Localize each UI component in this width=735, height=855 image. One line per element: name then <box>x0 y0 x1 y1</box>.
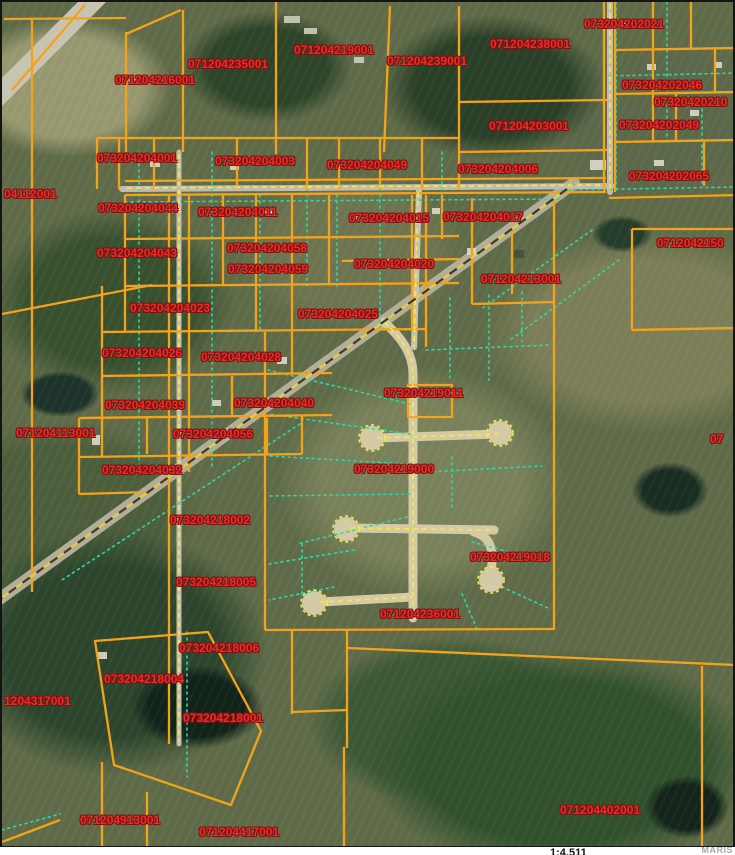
parcel-id-label: 073204204001 <box>97 152 177 164</box>
parcel-id-label: 073204204026 <box>102 347 182 359</box>
parcel-id-label: 071204216001 <box>115 74 195 86</box>
parcel-id-label: 071204213001 <box>481 273 561 285</box>
parcel-id-label: 07320420210 <box>654 96 727 108</box>
parcel-id-label: 073204218002 <box>170 514 250 526</box>
parcel-id-label: 073204218004 <box>104 673 184 685</box>
parcel-id-label: 073204202049 <box>619 119 699 131</box>
map-footer: 1:4,511 MARIS <box>0 847 735 855</box>
parcel-id-label: 071204236001 <box>380 608 460 620</box>
parcel-id-label: 073204204020 <box>354 258 434 270</box>
parcel-id-label: 04112001 <box>4 188 57 200</box>
parcel-id-label: 073204218006 <box>179 642 259 654</box>
parcel-id-label: 073204204023 <box>130 302 210 314</box>
parcel-id-label: 071204235001 <box>188 58 268 70</box>
parcel-id-label: 073204219018 <box>470 551 550 563</box>
parcel-id-label: 073204204039 <box>105 399 185 411</box>
parcel-id-label: 07 <box>710 433 723 445</box>
parcel-id-label: 073204204011 <box>198 206 277 218</box>
map-frame: 0712042160010712042350010712042190010712… <box>0 0 735 855</box>
parcel-id-label: 073204202065 <box>629 170 709 182</box>
parcel-id-label: 073204204058 <box>227 242 307 254</box>
map-scale-text: 1:4,511 <box>550 847 587 855</box>
parcel-id-label: 071204417001 <box>199 826 279 838</box>
map-viewport[interactable]: 0712042160010712042350010712042190010712… <box>0 0 735 847</box>
parcel-id-label: 073204204032 <box>102 464 182 476</box>
parcel-id-label: 071204238001 <box>490 38 570 50</box>
parcel-id-label: 071204113001 <box>16 427 95 439</box>
parcel-id-label: 071204402001 <box>560 804 640 816</box>
parcel-id-label: 071204203001 <box>489 120 569 132</box>
parcel-id-label: 073204204040 <box>234 397 314 409</box>
parcel-id-label: 1204317001 <box>4 695 71 707</box>
parcel-id-label: 073204204006 <box>458 163 538 175</box>
parcel-id-label: 073204202021 <box>584 18 664 30</box>
maris-watermark: MARIS <box>702 847 734 855</box>
parcel-id-label: 073204204025 <box>298 308 378 320</box>
parcel-id-label: 073204219000 <box>354 463 434 475</box>
parcel-id-label: 073204219011 <box>384 387 463 399</box>
parcel-id-label: 073204204059 <box>228 263 308 275</box>
parcel-id-label: 073204218001 <box>183 712 263 724</box>
parcel-id-label: 073204204056 <box>173 428 253 440</box>
parcel-id-label: 071204219001 <box>294 44 374 56</box>
parcel-id-label: 073204204044 <box>98 202 178 214</box>
parcel-id-label: 073204204028 <box>201 351 281 363</box>
parcel-id-label: 071204913001 <box>80 814 160 826</box>
parcel-labels-layer: 0712042160010712042350010712042190010712… <box>2 2 735 847</box>
parcel-id-label: 073204204015 <box>349 212 429 224</box>
parcel-id-label: 073204204003 <box>215 155 295 167</box>
parcel-id-label: 073204204049 <box>327 159 407 171</box>
parcel-id-label: 073204204017 <box>443 211 523 223</box>
parcel-id-label: 073204218005 <box>176 576 256 588</box>
parcel-id-label: 073204204043 <box>97 247 177 259</box>
parcel-id-label: 071204239001 <box>387 55 467 67</box>
parcel-id-label: 073204202046 <box>622 79 702 91</box>
parcel-id-label: 0712042150 <box>657 237 724 249</box>
